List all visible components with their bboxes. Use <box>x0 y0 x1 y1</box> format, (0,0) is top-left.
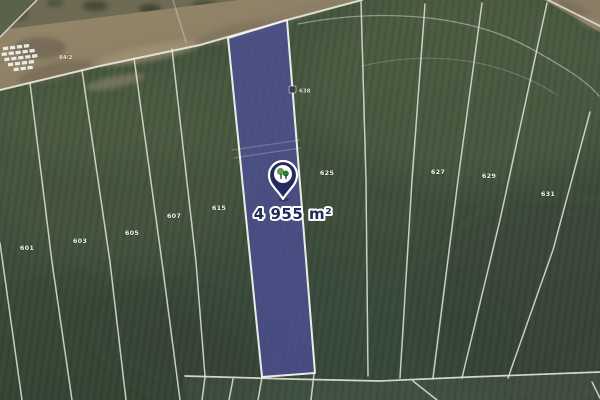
parcel-number-label: 615 <box>212 204 226 212</box>
parcel-number-label: 627 <box>431 168 445 176</box>
parcel-number-label: 607 <box>167 212 181 220</box>
poi-label: 638 <box>299 89 311 95</box>
parcel-number-label: 605 <box>125 229 139 237</box>
parcel-number-label: 629 <box>482 172 496 180</box>
parcel-number-label: 625 <box>320 169 334 177</box>
satellite-map: 601603605607615625627629631 638 84/2 4 9… <box>0 0 600 400</box>
parcel-area-label: 4 955 m² <box>254 205 332 223</box>
parcel-number-label: 603 <box>73 237 87 245</box>
corner-parcel-label: 84/2 <box>59 55 73 61</box>
map-canvas[interactable]: 601603605607615625627629631 638 84/2 4 9… <box>0 0 600 400</box>
poi-icon <box>289 86 296 93</box>
parcel-number-label: 601 <box>20 244 34 252</box>
parcel-number-label: 631 <box>541 190 555 198</box>
